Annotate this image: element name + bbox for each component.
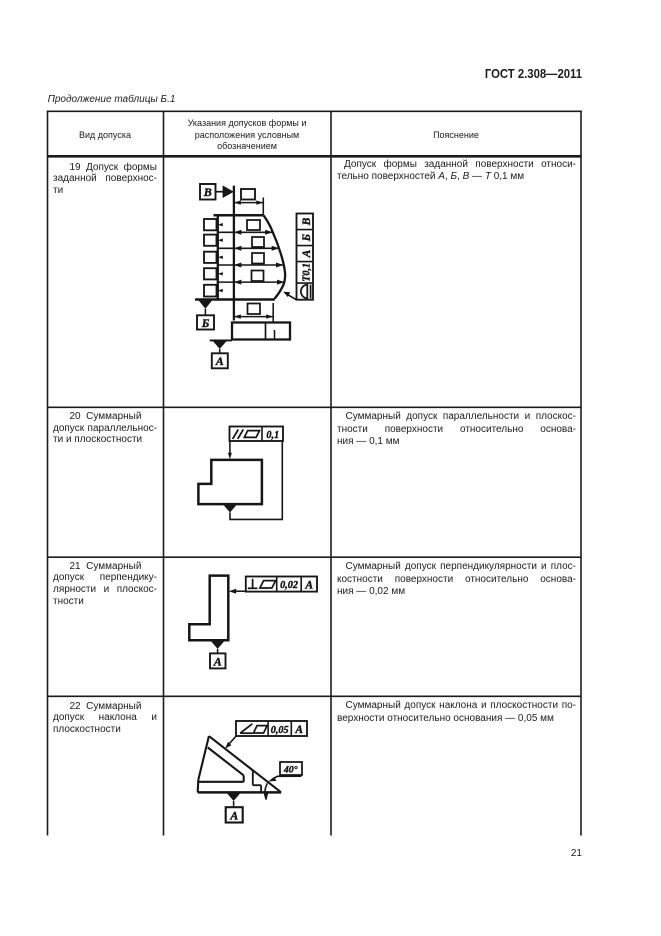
svg-text:0,05: 0,05 xyxy=(271,725,289,736)
svg-text:А: А xyxy=(294,724,303,736)
svg-text:Б: Б xyxy=(201,316,210,330)
svg-text:Б: Б xyxy=(301,234,313,242)
svg-text:0,1: 0,1 xyxy=(266,430,279,441)
svg-text:А: А xyxy=(215,354,224,368)
svg-text:В: В xyxy=(203,185,212,199)
svg-text:Т0,1: Т0,1 xyxy=(302,263,313,282)
svg-text:А: А xyxy=(301,249,313,258)
svg-text:А: А xyxy=(213,654,222,668)
svg-text:40°: 40° xyxy=(283,765,298,776)
svg-text:0,02: 0,02 xyxy=(280,580,298,591)
svg-text:В: В xyxy=(301,217,313,226)
svg-text:А: А xyxy=(304,579,313,591)
svg-text:А: А xyxy=(229,808,238,822)
